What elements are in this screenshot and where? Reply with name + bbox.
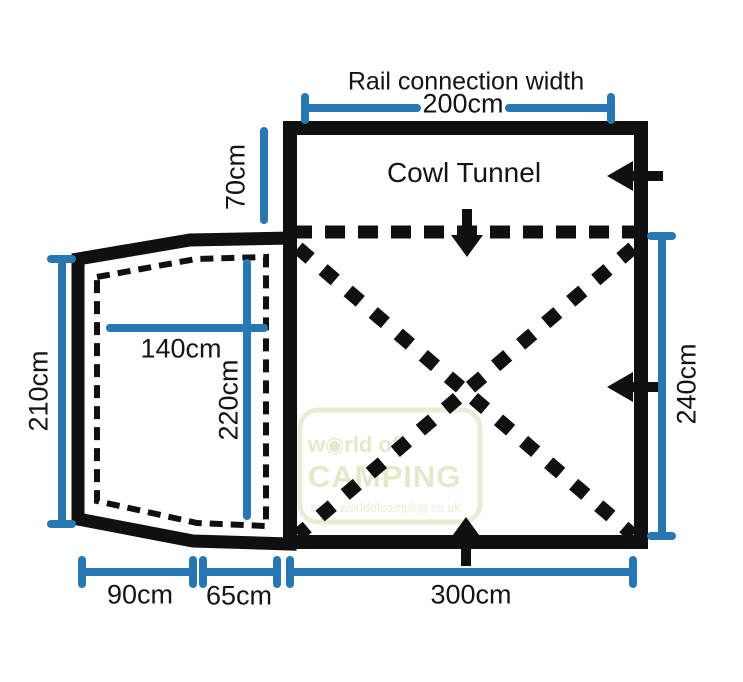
dim-65cm-label: 65cm — [206, 583, 272, 610]
watermark-line1: w◉rld of — [307, 432, 400, 457]
dim-220cm-label: 220cm — [216, 359, 243, 440]
dim-210cm-label: 210cm — [26, 350, 53, 431]
dim-90cm-label: 90cm — [107, 582, 173, 609]
dim-240cm-label: 240cm — [674, 343, 701, 424]
dim-200cm-label: 200cm — [422, 91, 503, 118]
dim-70cm-label: 70cm — [223, 144, 250, 210]
annexe-outline — [78, 238, 290, 544]
dim-300cm-label: 300cm — [430, 582, 511, 609]
awning-floorplan-diagram: w◉rld of CAMPING www.worldofcamping.co.u… — [0, 0, 743, 682]
watermark-line2: CAMPING — [308, 459, 461, 494]
dim-line-210cm — [51, 259, 72, 524]
dim-140cm-label: 140cm — [140, 336, 221, 363]
cowl-tunnel-label: Cowl Tunnel — [387, 159, 541, 187]
